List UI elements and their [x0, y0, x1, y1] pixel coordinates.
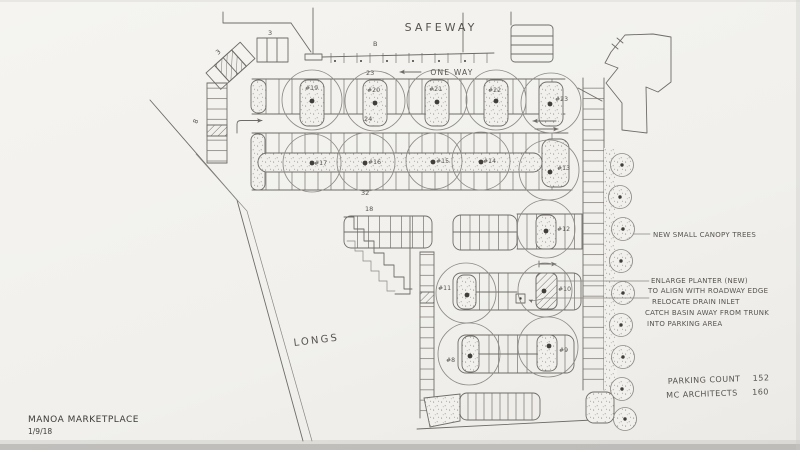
parking-count-value: 152: [753, 373, 770, 383]
one-way-label: ONE WAY: [430, 68, 473, 77]
planter-end-cap: [251, 80, 266, 113]
tree-label: #14: [483, 158, 496, 165]
planter-strip: [586, 392, 614, 423]
planter-island: [537, 335, 557, 371]
planter-corner: [542, 139, 569, 187]
tree-label: #21: [429, 86, 442, 93]
right-parking-strip: [578, 78, 617, 390]
tree-label: #15: [436, 158, 449, 165]
site-plan-drawing: SAFEWAY ONE WAY LONGS B 3 3 8 23 24 32 1…: [0, 0, 800, 450]
parking-row-18: [344, 216, 432, 248]
tree-label: #10: [558, 286, 571, 293]
parking-bay-north: [251, 79, 565, 129]
architects-label: MC ARCHITECTS: [666, 388, 738, 399]
annotation-notes: NEW SMALL CANOPY TREES ENLARGE PLANTER (…: [645, 231, 769, 328]
stall-count-23: 23: [366, 69, 374, 77]
longs-label: LONGS: [293, 332, 340, 348]
note-enlarge-planter-1: ENLARGE PLANTER (NEW): [651, 277, 748, 285]
enlarged-planter-hatched: [536, 273, 557, 309]
note-enlarge-planter-2: TO ALIGN WITH ROADWAY EDGE: [647, 287, 768, 295]
tree-label: #17: [314, 160, 327, 167]
architects-value: 160: [752, 387, 769, 397]
planter-median: [258, 153, 542, 172]
planter-strip: [424, 394, 460, 427]
tree-label: #12: [557, 226, 570, 233]
stall-count-18: 18: [365, 205, 373, 213]
parking-bay-central: [251, 133, 572, 190]
cart-corral-block: [511, 25, 553, 62]
stall-block-3: [257, 38, 288, 62]
parking-count-label: PARKING COUNT: [668, 374, 741, 386]
planter-island: [457, 275, 476, 309]
safeway-label: SAFEWAY: [405, 21, 478, 34]
project-date: 1/9/18: [28, 427, 52, 436]
safeway-canopy-walkway: [322, 12, 553, 63]
door-mark: B: [373, 40, 377, 48]
top-left-structures: [206, 8, 322, 89]
note-new-trees: NEW SMALL CANOPY TREES: [653, 231, 756, 239]
stall-count-3-angled: 3: [214, 48, 222, 57]
tree-label: #13: [557, 165, 570, 172]
tree-label: #23: [555, 96, 568, 103]
stall-count-24: 24: [364, 115, 372, 123]
parking-summary: PARKING COUNT 152 MC ARCHITECTS 160: [666, 373, 771, 400]
tree-label: #11: [438, 285, 451, 292]
scanned-site-plan-sheet: SAFEWAY ONE WAY LONGS B 3 3 8 23 24 32 1…: [0, 0, 800, 450]
angled-stall-block-3: [206, 42, 255, 89]
project-title: MANOA MARKETPLACE: [28, 415, 139, 425]
note-relocate-drain-1: RELOCATE DRAIN INLET: [652, 298, 740, 306]
building-outline-northeast: [605, 34, 671, 133]
tree-label: #22: [488, 87, 501, 94]
tree-label: #8: [446, 357, 455, 364]
tree-label: #9: [559, 347, 568, 354]
tree-label: #16: [368, 159, 381, 166]
stall-count-32: 32: [361, 189, 369, 197]
note-relocate-drain-2: CATCH BASIN AWAY FROM TRUNK: [645, 309, 769, 317]
tree-label: #19: [305, 85, 318, 92]
parking-bay-8-9: [458, 335, 574, 373]
tree-label: #20: [367, 87, 380, 94]
note-relocate-drain-3: INTO PARKING AREA: [647, 320, 722, 328]
stall-count-8: 8: [191, 118, 200, 125]
new-canopy-trees: [609, 154, 637, 431]
bottom-parking-row: [417, 392, 614, 429]
title-block: MANOA MARKETPLACE 1/9/18: [28, 415, 139, 436]
hatched-stall: [207, 125, 227, 136]
stall-count-3: 3: [268, 29, 272, 37]
entry-arrow: [237, 121, 262, 134]
hatched-stall: [420, 292, 434, 303]
left-parking-column: [207, 83, 227, 163]
longs-parking-column: [420, 252, 434, 418]
